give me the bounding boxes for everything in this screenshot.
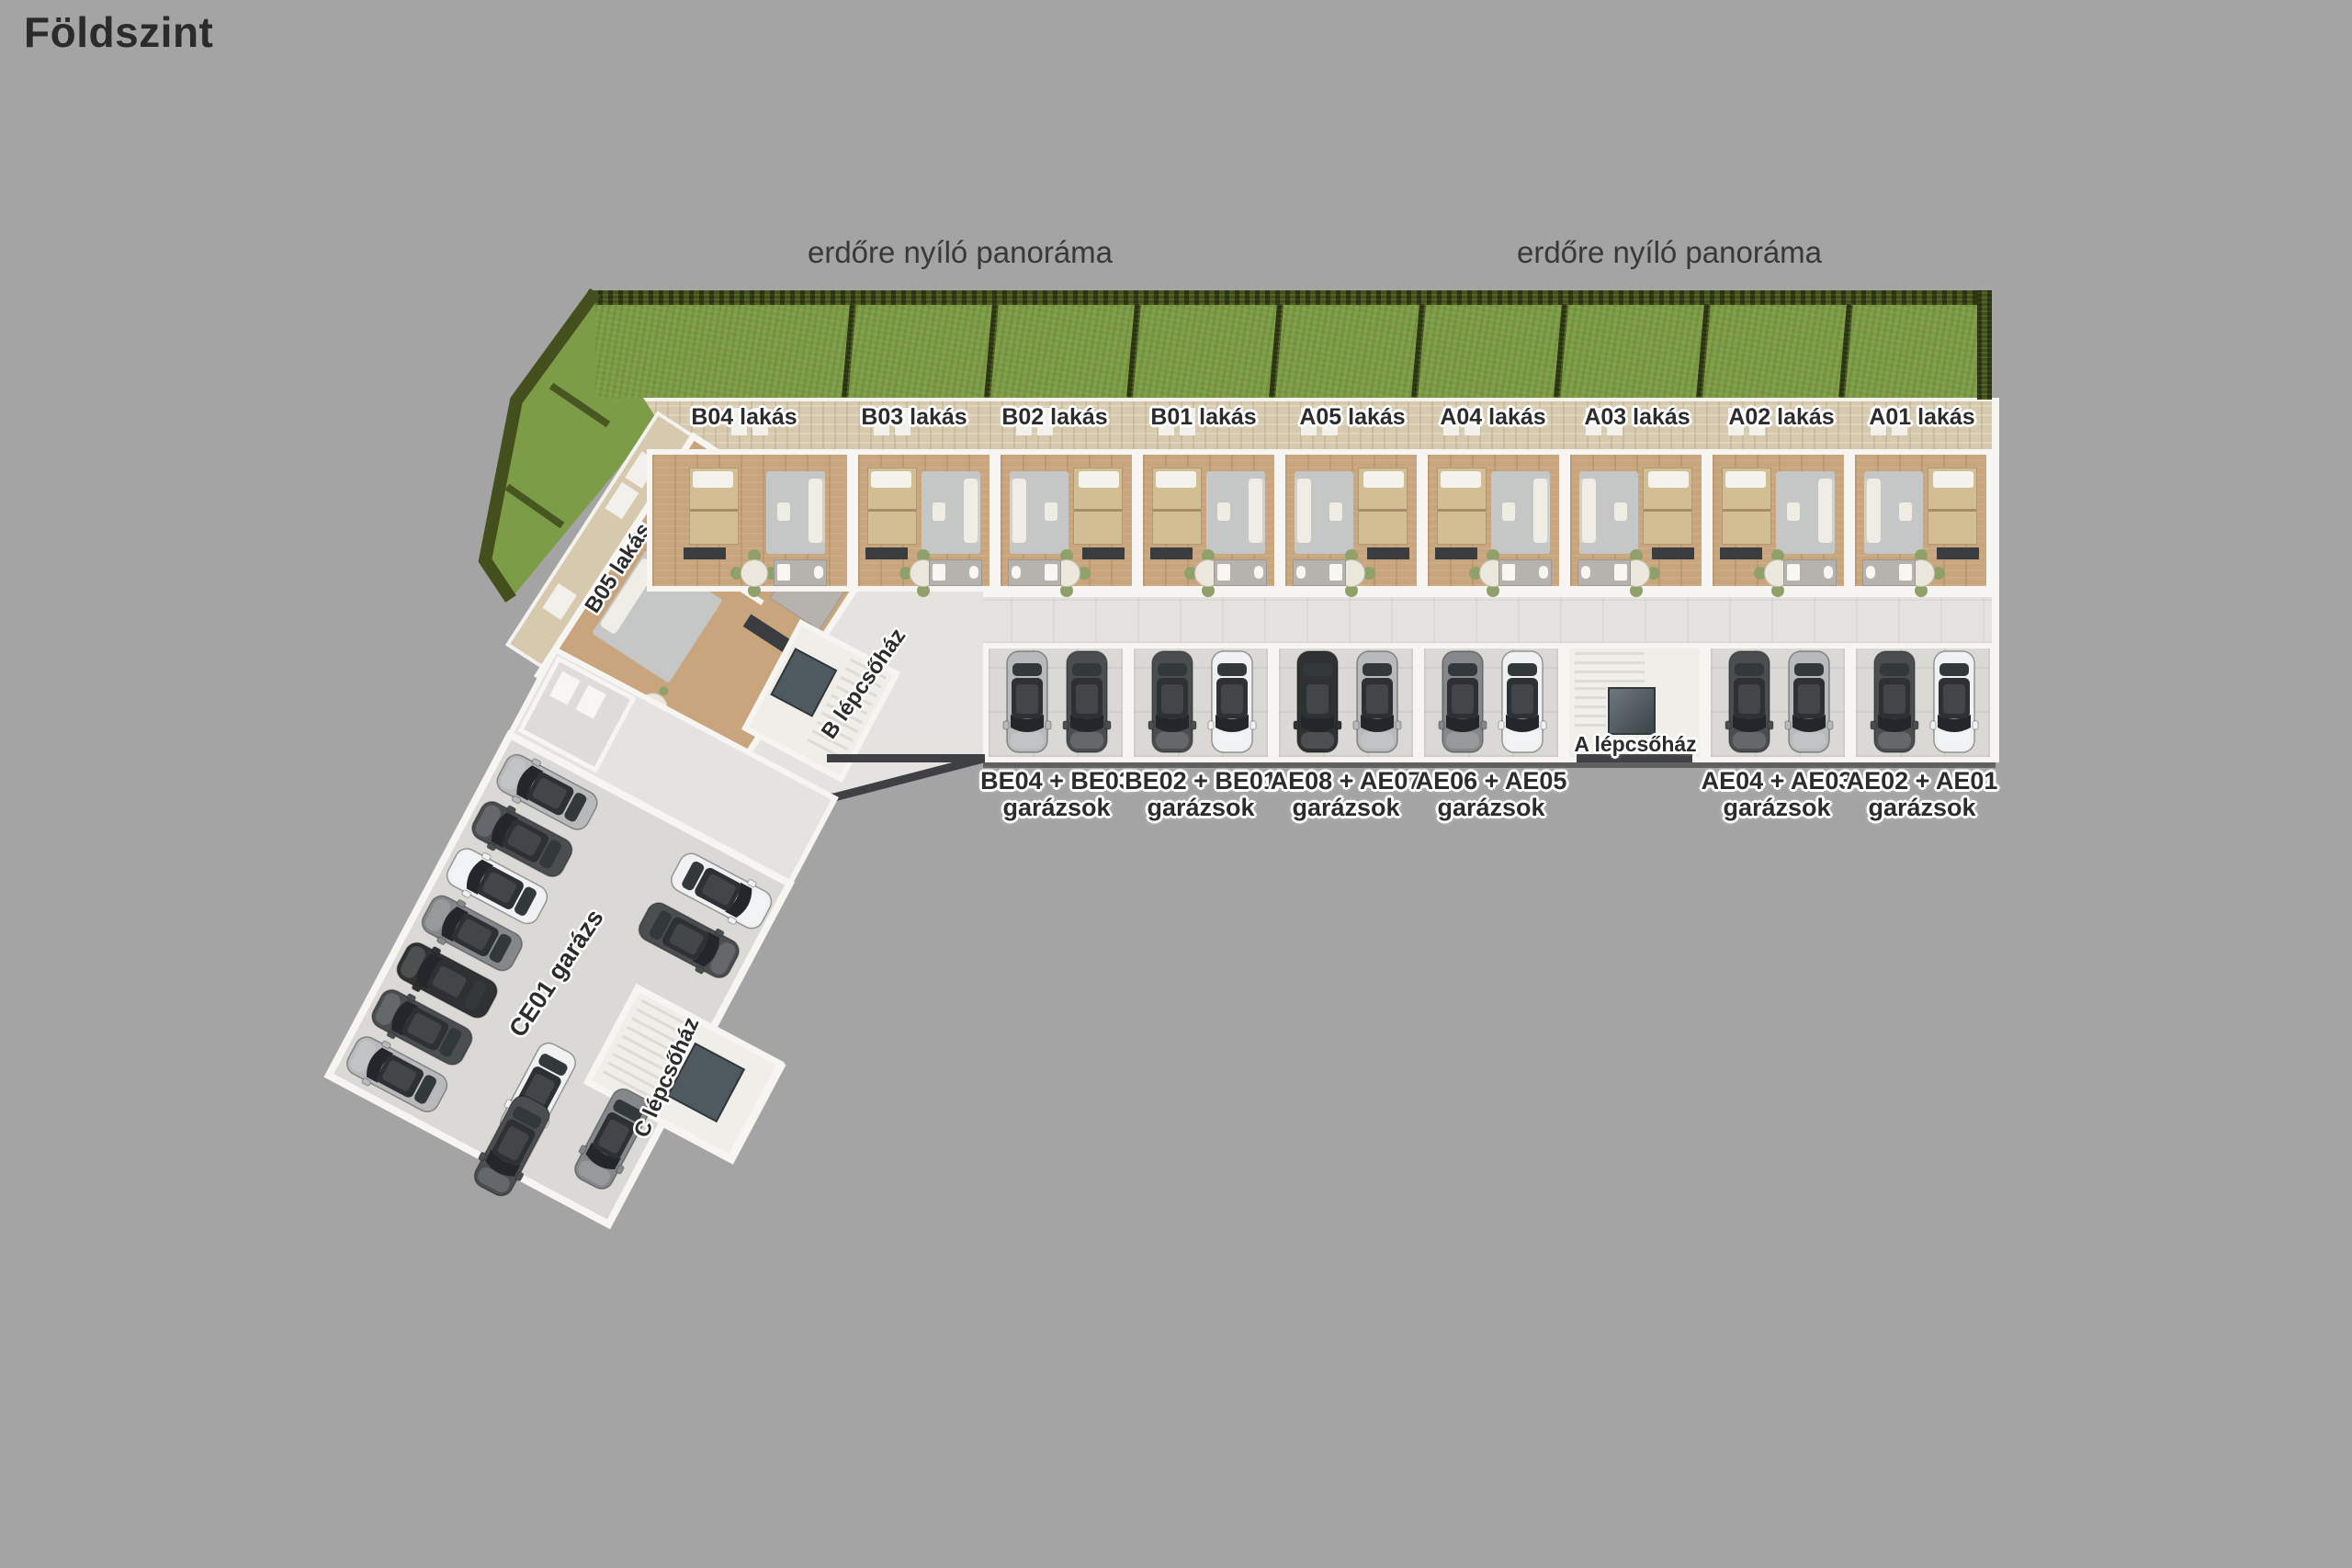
- kitchen-counter: [1367, 547, 1409, 559]
- rug: [922, 471, 980, 554]
- apartment-label: A02 lakás: [1728, 404, 1834, 431]
- apartment-unit: [995, 449, 1137, 592]
- kitchen-counter: [684, 547, 726, 559]
- garage-box: [1128, 643, 1273, 762]
- building-wall: [1992, 398, 1999, 762]
- bed: [1643, 468, 1692, 545]
- bed: [867, 468, 917, 545]
- car-top-view: [467, 1090, 557, 1202]
- garage-label: AE02 + AE01garázsok: [1847, 768, 1998, 821]
- apartment-unit: [853, 449, 995, 592]
- car-top-view: [441, 841, 553, 931]
- kitchen-counter: [1082, 547, 1125, 559]
- kitchen-counter: [1435, 547, 1477, 559]
- apartment-label: B02 lakás: [1001, 404, 1107, 431]
- bed: [1358, 468, 1408, 545]
- rug: [1206, 471, 1265, 554]
- apartment-label-b05: B05 lakás: [580, 519, 656, 618]
- kitchen-counter: [1150, 547, 1193, 559]
- kitchen-counter: [865, 547, 908, 559]
- bathroom: [1862, 559, 1916, 586]
- car-top-view: [367, 983, 479, 1073]
- garage-box: [1850, 643, 1996, 762]
- terrace-lounger: [542, 583, 577, 620]
- car-top-view: [416, 888, 528, 978]
- apartment-unit: [1849, 449, 1992, 592]
- bathroom: [1498, 559, 1552, 586]
- garage-box: [1419, 643, 1564, 762]
- staircase-c-label: C lépcsőház: [629, 1014, 705, 1142]
- hedge-right-edge: [1977, 290, 1992, 400]
- hedge-diagonal: [485, 292, 595, 599]
- car-top-view: [391, 935, 503, 1025]
- bathroom: [1008, 559, 1061, 586]
- apartment-label: B03 lakás: [861, 404, 967, 431]
- terrace-lounger: [605, 482, 639, 519]
- corridor: [799, 592, 1992, 643]
- bed: [689, 468, 739, 545]
- rug: [1491, 471, 1550, 554]
- bathroom: [1293, 559, 1346, 586]
- rug: [1864, 471, 1923, 554]
- grass-strip: [595, 303, 1992, 398]
- wall-shadow: [827, 754, 985, 762]
- garage-ce01-label: CE01 garázs: [503, 904, 609, 1042]
- storage-room: [521, 659, 634, 770]
- bed: [1437, 468, 1487, 545]
- rug: [1579, 471, 1638, 554]
- apartment-unit: [1707, 449, 1849, 592]
- floor-plan-canvas: Földszint erdőre nyíló panoráma erdőre n…: [0, 0, 2352, 1568]
- bathroom: [774, 559, 827, 586]
- driveway: [799, 643, 983, 759]
- garage-box: [1273, 643, 1419, 762]
- apartment-label: A03 lakás: [1584, 404, 1690, 431]
- dining-table: [632, 688, 673, 728]
- bathroom: [929, 559, 982, 586]
- apartment-unit: [647, 449, 853, 592]
- dining-table: [741, 559, 768, 587]
- elevator-icon: [668, 1043, 744, 1122]
- wall-shadow: [718, 759, 983, 797]
- kitchen-counter: [743, 614, 808, 663]
- garage-label: BE04 + BE03garázsok: [980, 768, 1133, 821]
- apartment-unit: [1422, 449, 1565, 592]
- kitchen-counter: [1937, 547, 1979, 559]
- car-top-view: [568, 1083, 658, 1195]
- apartment-unit: [1565, 449, 1707, 592]
- hedge-divider: [507, 487, 562, 525]
- car-top-view: [633, 896, 745, 986]
- apartment-label: B04 lakás: [691, 404, 797, 431]
- apartment-interior: [652, 455, 847, 586]
- garage-floor: [329, 735, 859, 1261]
- stairs-icon: [1575, 652, 1645, 687]
- stairs-icon: [1575, 687, 1606, 733]
- entry-hall: [510, 649, 835, 884]
- hedge-top: [588, 290, 1992, 305]
- bed: [1073, 468, 1123, 545]
- apartment-unit: [1137, 449, 1280, 592]
- car-top-view: [466, 795, 578, 885]
- kitchen-counter: [1652, 547, 1694, 559]
- stairs-icon: [604, 1000, 695, 1100]
- apartment-unit: [1280, 449, 1422, 592]
- bed: [1928, 468, 1977, 545]
- car-top-view: [493, 1037, 583, 1149]
- apartment-label: B01 lakás: [1150, 404, 1256, 431]
- garage-label: AE06 + AE05garázsok: [1416, 768, 1567, 821]
- bathroom: [1577, 559, 1631, 586]
- apartment-label: A05 lakás: [1299, 404, 1405, 431]
- car-top-view: [665, 846, 777, 936]
- panorama-label-left: erdőre nyíló panoráma: [808, 235, 1113, 270]
- rug: [1776, 471, 1835, 554]
- elevator-icon: [1608, 687, 1656, 735]
- bed: [1152, 468, 1202, 545]
- page-title: Földszint: [24, 7, 213, 57]
- rug: [1010, 471, 1069, 554]
- garage-box: [983, 643, 1128, 762]
- bed: [1722, 468, 1771, 545]
- garage-label: AE08 + AE07garázsok: [1271, 768, 1422, 821]
- garage-label: AE04 + AE03garázsok: [1702, 768, 1853, 821]
- staircase-c: [587, 987, 780, 1157]
- staircase-a-label: A lépcsőház: [1574, 732, 1696, 757]
- panorama-label-right: erdőre nyíló panoráma: [1517, 235, 1822, 270]
- kitchen-counter: [1720, 547, 1762, 559]
- bathroom: [1783, 559, 1837, 586]
- garage-label: BE02 + BE01garázsok: [1125, 768, 1277, 821]
- apartment-label: A01 lakás: [1869, 404, 1974, 431]
- rug: [766, 471, 825, 554]
- rug: [1295, 471, 1353, 554]
- apartment-label: A04 lakás: [1440, 404, 1545, 431]
- car-top-view: [341, 1030, 453, 1120]
- car-top-view: [492, 748, 604, 838]
- garage-box: [1705, 643, 1850, 762]
- bathroom: [1214, 559, 1267, 586]
